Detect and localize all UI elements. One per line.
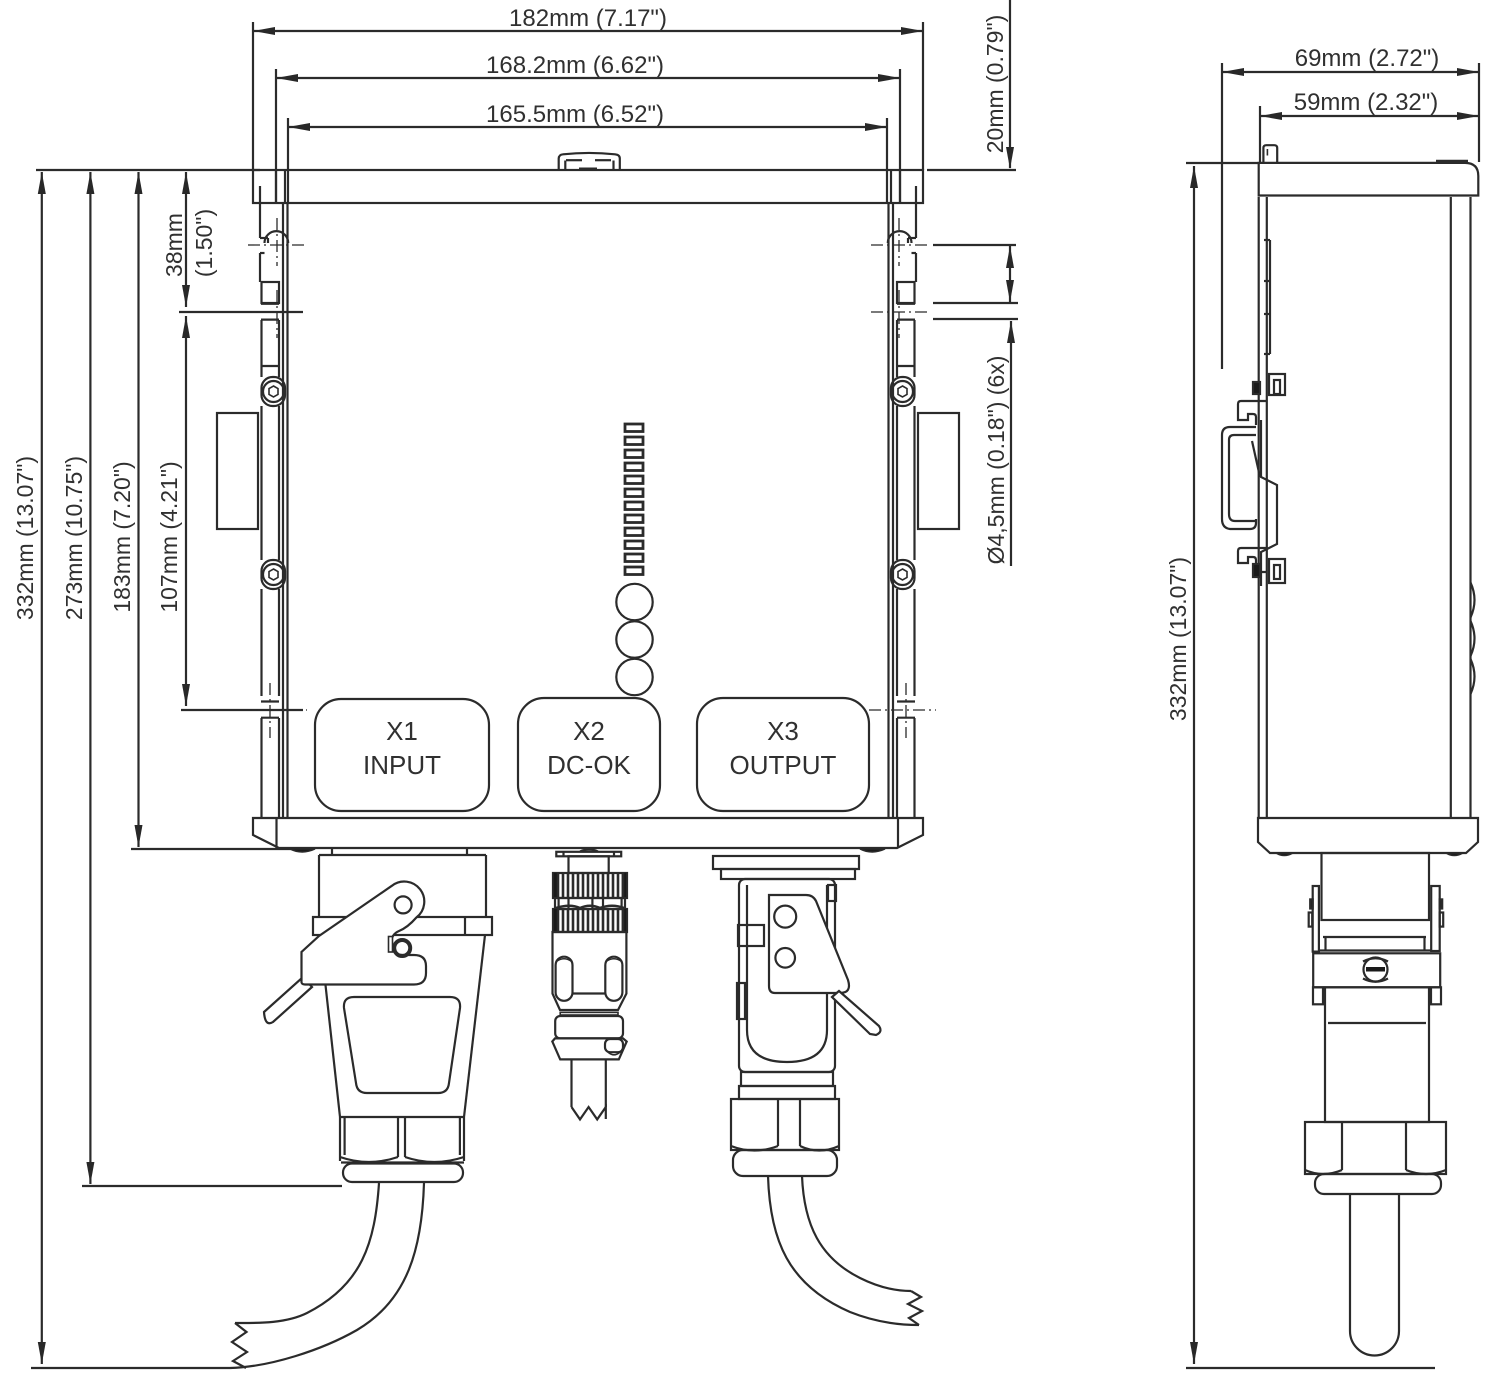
svg-text:INPUT: INPUT	[363, 750, 441, 780]
svg-text:38mm: 38mm	[161, 213, 187, 277]
svg-text:165.5mm (6.52"): 165.5mm (6.52")	[486, 101, 664, 128]
svg-text:DC-OK: DC-OK	[547, 750, 631, 780]
svg-text:Ø4,5mm (0.18") (6x): Ø4,5mm (0.18") (6x)	[983, 356, 1009, 565]
svg-text:69mm (2.72"): 69mm (2.72")	[1295, 45, 1440, 72]
svg-text:OUTPUT: OUTPUT	[730, 750, 837, 780]
svg-text:X2: X2	[573, 716, 605, 746]
svg-text:X1: X1	[386, 716, 418, 746]
svg-text:107mm (4.21"): 107mm (4.21")	[156, 461, 182, 612]
svg-text:(1.50"): (1.50")	[191, 209, 217, 277]
svg-text:183mm (7.20"): 183mm (7.20")	[109, 461, 135, 612]
svg-text:20mm (0.79"): 20mm (0.79")	[982, 15, 1008, 154]
svg-text:273mm (10.75"): 273mm (10.75")	[61, 456, 87, 620]
svg-text:182mm (7.17"): 182mm (7.17")	[509, 5, 667, 32]
svg-text:X3: X3	[767, 716, 799, 746]
svg-text:168.2mm (6.62"): 168.2mm (6.62")	[486, 52, 664, 79]
svg-text:59mm (2.32"): 59mm (2.32")	[1294, 89, 1439, 116]
svg-text:332mm (13.07"): 332mm (13.07")	[1165, 557, 1191, 721]
svg-text:332mm (13.07"): 332mm (13.07")	[12, 456, 38, 620]
